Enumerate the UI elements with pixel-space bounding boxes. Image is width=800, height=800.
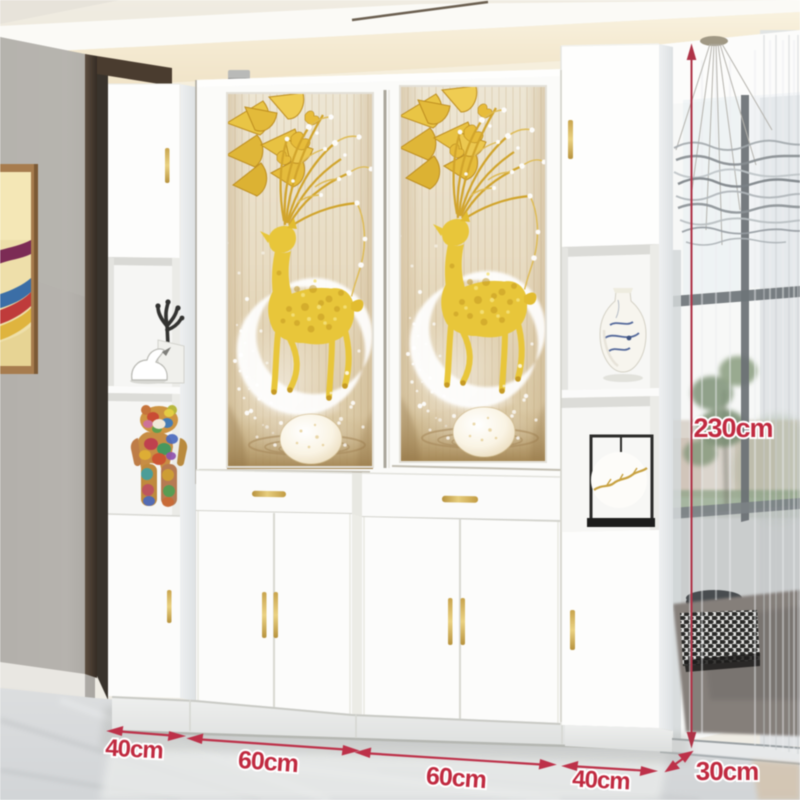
svg-text:30cm: 30cm bbox=[696, 756, 759, 786]
svg-text:230cm: 230cm bbox=[693, 413, 772, 443]
svg-text:40cm: 40cm bbox=[572, 766, 631, 796]
svg-text:60cm: 60cm bbox=[237, 746, 299, 778]
svg-text:60cm: 60cm bbox=[425, 762, 487, 794]
svg-text:40cm: 40cm bbox=[105, 735, 164, 765]
